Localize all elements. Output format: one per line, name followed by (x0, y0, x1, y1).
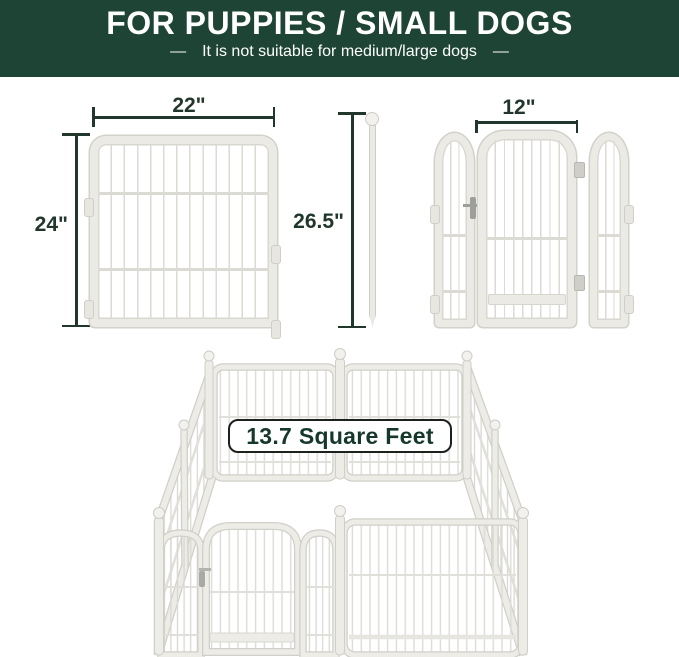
assembled-pen-illustration (128, 347, 540, 657)
door-width-label: 12" (487, 96, 551, 120)
single-panel-diagram (90, 136, 277, 327)
post-ball (154, 508, 165, 519)
panel-connector-tab (84, 198, 94, 217)
area-badge: 13.7 Square Feet (228, 419, 452, 453)
connector-pole (369, 125, 376, 327)
door-hinge (574, 275, 585, 291)
subtitle-dash-left: — (170, 43, 186, 61)
panel-connector-tab (271, 320, 281, 339)
product-infographic: FOR PUPPIES / SMALL DOGS — It is not sui… (0, 0, 679, 657)
panel-connector-tab (84, 300, 94, 319)
door-side-panel-right (590, 133, 628, 327)
door-bottom-rail (488, 294, 566, 305)
door-side-panel-left (435, 133, 474, 327)
pole-height-label: 26.5" (262, 210, 344, 234)
pen-door-bottom-rail (210, 633, 294, 642)
panel-height-dimension-line (75, 133, 78, 327)
pen-door-latch (199, 571, 205, 587)
panel-connector-tab (624, 205, 634, 224)
pole-height-dimension-line (351, 112, 354, 328)
pen-front-door-panel (161, 526, 336, 655)
post-ball (179, 420, 189, 430)
panel-connector-tab (271, 245, 281, 264)
panel-rail (442, 290, 467, 293)
door-bars (487, 140, 567, 318)
panel-rail (597, 290, 621, 293)
post-ball (518, 508, 529, 519)
panel-height-label: 24" (12, 213, 68, 237)
door-latch (470, 197, 476, 219)
header-subtitle: — It is not suitable for medium/large do… (0, 43, 679, 61)
post-ball (335, 349, 346, 360)
panel-connector-tab (430, 205, 440, 224)
panel-rail (98, 192, 269, 195)
header-title: FOR PUPPIES / SMALL DOGS (0, 0, 679, 41)
door-diagram (478, 131, 576, 327)
panel-connector-tab (624, 295, 634, 314)
door-hinge (574, 162, 585, 178)
post-ball (490, 420, 500, 430)
header-banner: FOR PUPPIES / SMALL DOGS — It is not sui… (0, 0, 679, 77)
pen-front-panel (344, 522, 521, 655)
pole-ball-finial (365, 112, 379, 126)
door-width-dimension-line (475, 121, 578, 124)
subtitle-dash-right: — (493, 43, 509, 61)
panel-bars (99, 145, 268, 318)
pen-door-latch-pin (199, 568, 211, 571)
panel-rail (442, 234, 467, 237)
door-latch-pin (463, 204, 477, 207)
panel-connector-tab (430, 295, 440, 314)
post-ball (335, 506, 346, 517)
door-rail (486, 237, 568, 240)
panel-rail (98, 268, 269, 271)
pen-back-panels (204, 349, 472, 480)
panel-width-label: 22" (157, 94, 221, 118)
post-ball (462, 351, 472, 361)
subtitle-text: It is not suitable for medium/large dogs (202, 43, 477, 61)
post-ball (204, 351, 214, 361)
panel-rail (597, 234, 621, 237)
